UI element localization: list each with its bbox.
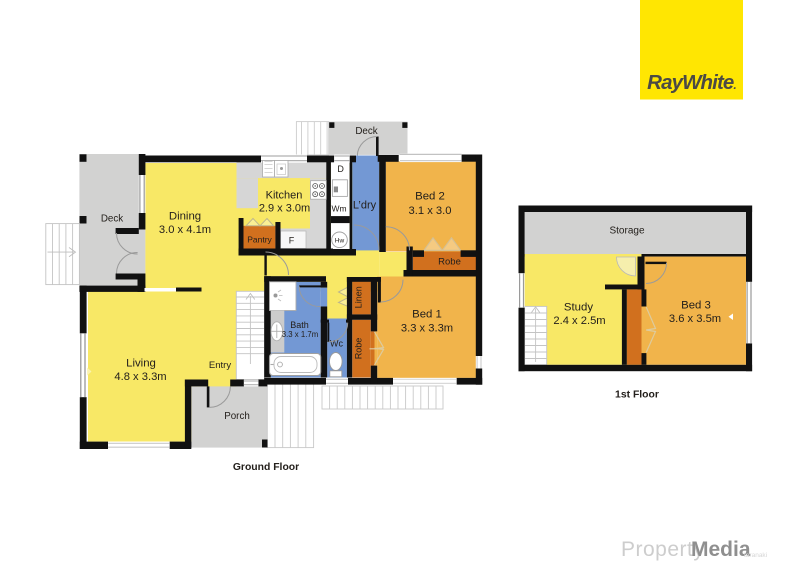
svg-text:Deck: Deck [101,214,123,225]
svg-text:Wm: Wm [331,204,346,214]
svg-text:3.1 x 3.0: 3.1 x 3.0 [409,205,452,217]
svg-text:Media: Media [691,538,751,561]
svg-text:Robe: Robe [354,338,364,360]
svg-text:Deck: Deck [355,126,377,137]
svg-text:Ground Floor: Ground Floor [233,462,299,473]
svg-text:Kitchen: Kitchen [266,190,303,202]
svg-text:Dining: Dining [169,211,201,223]
svg-text:Hw: Hw [335,237,345,244]
svg-text:3.3 x 1.7m: 3.3 x 1.7m [282,330,318,339]
svg-text:3.0 x 4.1m: 3.0 x 4.1m [159,224,211,236]
svg-text:Entry: Entry [209,360,231,371]
svg-text:F: F [289,236,295,246]
svg-text:2.4 x 2.5m: 2.4 x 2.5m [553,315,605,327]
svg-text:4.8 x 3.3m: 4.8 x 3.3m [114,371,166,383]
svg-text:1st Floor: 1st Floor [615,390,659,401]
svg-text:Bed 3: Bed 3 [681,300,711,312]
svg-text:Linen: Linen [354,286,364,308]
svg-text:Bed 1: Bed 1 [412,309,442,321]
svg-text:Living: Living [126,358,156,370]
svg-text:Robe: Robe [438,257,461,268]
svg-text:D: D [337,164,344,174]
svg-text:3.6 x 3.5m: 3.6 x 3.5m [669,313,721,325]
svg-text:Bath: Bath [290,320,309,330]
svg-text:Pantry: Pantry [247,235,272,245]
svg-text:Porch: Porch [224,411,250,422]
svg-text:taranaki: taranaki [744,552,767,559]
svg-text:RayWhite.: RayWhite. [647,71,736,94]
svg-text:2.9 x 3.0m: 2.9 x 3.0m [259,203,310,215]
svg-text:L’dry: L’dry [353,200,377,212]
svg-text:Storage: Storage [609,226,644,237]
svg-text:Bed 2: Bed 2 [415,191,445,203]
svg-text:3.3 x 3.3m: 3.3 x 3.3m [401,323,453,335]
svg-text:Study: Study [564,302,593,314]
